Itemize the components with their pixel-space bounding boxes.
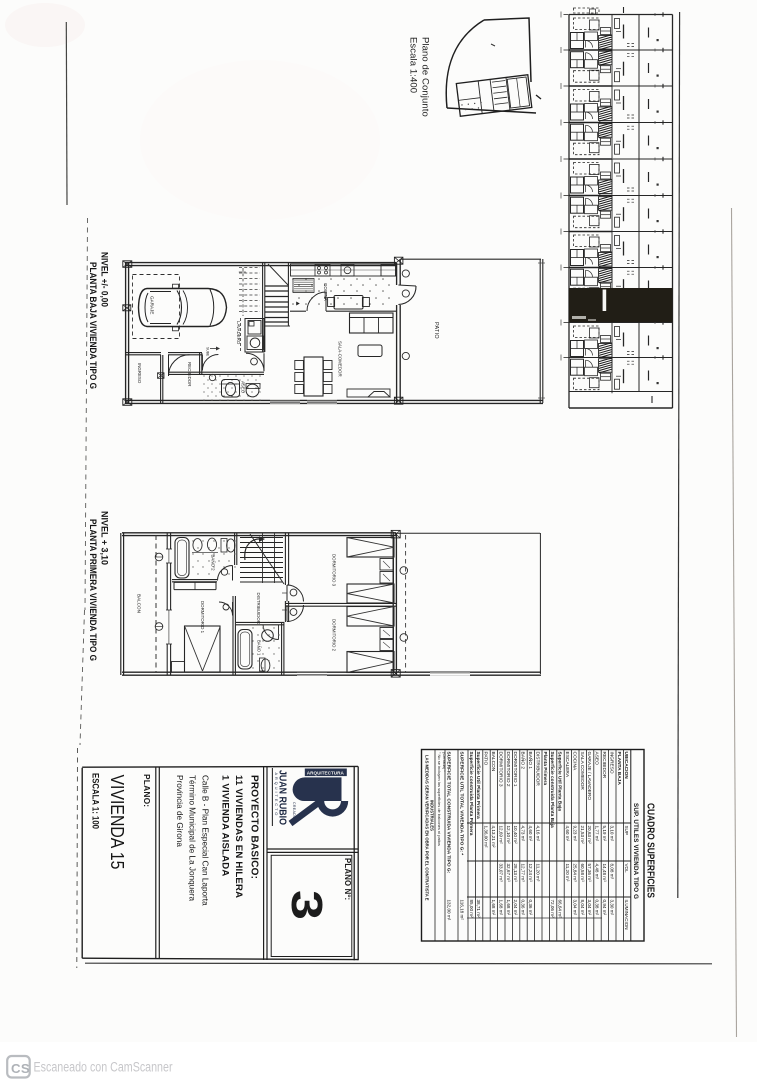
svg-text:2,04 m²: 2,04 m² xyxy=(513,900,518,916)
svg-text:SALA-COMEDOR: SALA-COMEDOR xyxy=(338,341,343,377)
svg-text:BAÑO 1: BAÑO 1 xyxy=(257,640,262,656)
svg-text:DISTRIBUIDOR: DISTRIBUIDOR xyxy=(256,593,261,624)
svg-text:1 VIVIENDA AISLADA: 1 VIVIENDA AISLADA xyxy=(220,775,231,877)
svg-text:Escala 1:400: Escala 1:400 xyxy=(408,37,419,93)
svg-text:SUPERFICIE UTIL TOTAL VIVIENDA: SUPERFICIE UTIL TOTAL VIVIENDA TIPO G: * xyxy=(459,752,465,856)
svg-text:0,94 m²: 0,94 m² xyxy=(602,900,607,916)
svg-text:11,20 m³: 11,20 m³ xyxy=(535,864,540,882)
svg-text:CS: CS xyxy=(11,1061,30,1076)
svg-text:GARAJE: GARAJE xyxy=(150,296,155,314)
svg-text:12,77 m³: 12,77 m³ xyxy=(521,864,526,883)
svg-text:DORMITORIO 1: DORMITORIO 1 xyxy=(200,601,205,634)
svg-text:LAS MEDIDAS SERAN VERIFICADAS: LAS MEDIDAS SERAN VERIFICADAS EN OBRA PO… xyxy=(425,755,430,901)
svg-text:116,18 m²: 116,18 m² xyxy=(460,900,465,921)
svg-text:ILUMINACION: ILUMINACION xyxy=(624,900,629,930)
svg-text:20,63 m²: 20,63 m² xyxy=(587,826,592,845)
svg-text:85,00 m²: 85,00 m² xyxy=(469,900,474,919)
svg-text:DORMITORIO 1: DORMITORIO 1 xyxy=(512,752,518,787)
svg-text:3: 3 xyxy=(282,890,331,920)
svg-text:DORMITORIO 3: DORMITORIO 3 xyxy=(332,554,337,587)
svg-text:BAÑO 2: BAÑO 2 xyxy=(520,752,527,770)
svg-text:CUADRO SUPERFICIES: CUADRO SUPERFICIES xyxy=(645,803,656,898)
svg-text:5,19 m²: 5,19 m² xyxy=(602,826,607,842)
svg-text:32,67 m³: 32,67 m³ xyxy=(506,864,511,883)
svg-text:INGRESO: INGRESO xyxy=(137,363,142,384)
svg-text:0,38 m²: 0,38 m² xyxy=(595,900,600,916)
svg-text:PROYECTO BASICO:: PROYECTO BASICO: xyxy=(249,775,260,879)
svg-text:Término Municipal de La Jonque: Término Municipal de La Jonquera xyxy=(188,775,197,902)
svg-text:4,16 m²: 4,16 m² xyxy=(535,826,540,842)
svg-text:Superficie Util Planta Primera: Superficie Util Planta Primera xyxy=(475,752,481,820)
svg-text:VOL: VOL xyxy=(624,864,629,874)
svg-text:UBICACION: UBICACION xyxy=(623,752,629,780)
svg-text:BAÑO 1: BAÑO 1 xyxy=(527,752,534,770)
svg-text:8,04 m²: 8,04 m² xyxy=(580,900,585,916)
svg-text:3,10 m²: 3,10 m² xyxy=(609,826,614,842)
svg-text:14,48 m³: 14,48 m³ xyxy=(602,864,607,883)
svg-text:Superficie Util Planta Baja: Superficie Util Planta Baja xyxy=(557,752,563,812)
svg-text:ASEO: ASEO xyxy=(594,752,600,766)
svg-text:ASEO: ASEO xyxy=(241,381,246,394)
svg-text:VIVIENDA 15: VIVIENDA 15 xyxy=(107,775,128,870)
svg-text:4,60 m²: 4,60 m² xyxy=(565,826,570,842)
svg-text:12,69 m²: 12,69 m² xyxy=(498,826,503,845)
svg-text:PLANTA BAJA: PLANTA BAJA xyxy=(616,752,622,786)
svg-text:33,07 m³: 33,07 m³ xyxy=(498,864,503,883)
svg-text:8,08 m³: 8,08 m³ xyxy=(609,864,614,880)
svg-text:DORMITORIO 2: DORMITORIO 2 xyxy=(505,752,511,787)
svg-text:ESCALERA: ESCALERA xyxy=(564,752,570,778)
svg-text:PLANTA BAJA VIVIENDA TIPO G: PLANTA BAJA VIVIENDA TIPO G xyxy=(88,262,98,389)
svg-text:3,30 m²: 3,30 m² xyxy=(609,900,614,916)
svg-text:ARQUITECTURA: ARQUITECTURA xyxy=(307,770,345,775)
svg-text:Provincia de Girona: Provincia de Girona xyxy=(175,775,184,847)
svg-text:SUBE: SUBE xyxy=(206,347,210,357)
svg-text:4,60 m²: 4,60 m² xyxy=(528,826,533,842)
svg-text:INGRESO: INGRESO xyxy=(608,752,614,774)
svg-text:21,53 m²: 21,53 m² xyxy=(580,826,585,845)
svg-text:38,71 m²: 38,71 m² xyxy=(476,900,481,919)
svg-text:PLANO:: PLANO: xyxy=(142,774,152,807)
svg-text:PLANTA PRIMERA VIVIENDA TIPO G: PLANTA PRIMERA VIVIENDA TIPO G xyxy=(88,519,98,661)
svg-text:28,13 m³: 28,13 m³ xyxy=(513,864,518,883)
svg-text:1,68 m²: 1,68 m² xyxy=(498,900,503,916)
svg-text:CREADO: CREADO xyxy=(292,802,296,819)
svg-text:3,04 m²: 3,04 m² xyxy=(572,900,577,916)
svg-text:1,77 m²: 1,77 m² xyxy=(595,826,600,842)
svg-text:SUP: SUP xyxy=(624,826,629,835)
svg-text:10,40 m²: 10,40 m² xyxy=(513,826,518,845)
svg-text:9,23 m²: 9,23 m² xyxy=(572,826,577,842)
svg-text:3,04 m²: 3,04 m² xyxy=(587,900,592,916)
svg-text:Superficie construida Planta P: Superficie construida Planta Primera xyxy=(468,752,474,836)
svg-text:JUAN RUBIO: JUAN RUBIO xyxy=(277,770,289,825)
svg-text:PATIO: PATIO xyxy=(433,322,439,339)
svg-text:60,58 m³: 60,58 m³ xyxy=(580,864,585,883)
svg-text:Planta Primera: Planta Primera xyxy=(542,752,548,786)
svg-text:PLANO Nº:: PLANO Nº: xyxy=(343,858,352,900)
svg-text:INDUSTRIALES: INDUSTRIALES xyxy=(430,800,435,831)
svg-text:0,36 m²: 0,36 m² xyxy=(521,900,526,916)
svg-text:4,73 m²: 4,73 m² xyxy=(521,826,526,842)
svg-text:4,48 m³: 4,48 m³ xyxy=(595,864,600,880)
svg-text:COCINA: COCINA xyxy=(571,752,577,771)
svg-text:1,68 m²: 1,68 m² xyxy=(506,900,511,916)
svg-text:66,64 m²: 66,64 m² xyxy=(558,900,563,919)
svg-text:SALA COMEDOR: SALA COMEDOR xyxy=(579,752,585,791)
svg-text:12,10 m²: 12,10 m² xyxy=(506,826,511,845)
svg-text:Plano de Conjunto: Plano de Conjunto xyxy=(420,37,431,117)
svg-text:11 VIVIENDAS EN HILERA: 11 VIVIENDAS EN HILERA xyxy=(233,775,244,898)
svg-text:1,68 m²: 1,68 m² xyxy=(491,900,496,916)
svg-text:DORMITORIO 2: DORMITORIO 2 xyxy=(332,619,337,652)
svg-text:4,13,21 m²: 4,13,21 m² xyxy=(491,826,496,848)
svg-text:BAÑO 2: BAÑO 2 xyxy=(211,555,216,572)
svg-text:DISTRIBUIDOR: DISTRIBUIDOR xyxy=(534,752,540,787)
svg-text:11,20 m³: 11,20 m³ xyxy=(565,864,570,882)
svg-text:25,84 m³: 25,84 m³ xyxy=(572,864,577,883)
svg-text:1,36,00 m²: 1,36,00 m² xyxy=(484,826,489,848)
svg-text:72,06 m²: 72,06 m² xyxy=(550,900,555,919)
svg-text:BALCON: BALCON xyxy=(490,752,496,772)
svg-text:12,24 m³: 12,24 m³ xyxy=(528,864,533,883)
svg-text:RECIBIDOR: RECIBIDOR xyxy=(601,752,607,779)
svg-text:PATIO: PATIO xyxy=(483,752,489,766)
svg-text:(Cerrada) *: (Cerrada) * xyxy=(442,752,447,772)
svg-text:RECIBIDOR: RECIBIDOR xyxy=(187,362,192,386)
svg-text:" No se incluyen las superfici: " No se incluyen las superficies de balc… xyxy=(437,752,442,846)
svg-text:NIVEL + 3,10: NIVEL + 3,10 xyxy=(100,511,110,565)
svg-text:NIVEL +/- 0,00: NIVEL +/- 0,00 xyxy=(100,252,110,307)
svg-text:Calle B - Plan Especial Can La: Calle B - Plan Especial Can Laporta xyxy=(201,775,210,906)
svg-text:Superficie construida Planta B: Superficie construida Planta Baja xyxy=(549,752,555,829)
svg-text:ESCALA 1: 100: ESCALA 1: 100 xyxy=(90,773,101,829)
svg-text:DORMITORIO 3: DORMITORIO 3 xyxy=(497,752,503,787)
svg-text:BALCON: BALCON xyxy=(137,594,142,613)
svg-text:132,00 m²: 132,00 m² xyxy=(447,900,452,921)
svg-text:Escaneado con CamScanner: Escaneado con CamScanner xyxy=(34,1060,173,1075)
svg-text:SUP. UTILES VIVIENDA TIPO G: SUP. UTILES VIVIENDA TIPO G xyxy=(632,803,639,899)
svg-text:GARAJE / LAVADERO: GARAJE / LAVADERO xyxy=(586,752,592,801)
svg-text:0,36 m²: 0,36 m² xyxy=(528,900,533,916)
svg-text:57,36 m³: 57,36 m³ xyxy=(587,864,592,883)
